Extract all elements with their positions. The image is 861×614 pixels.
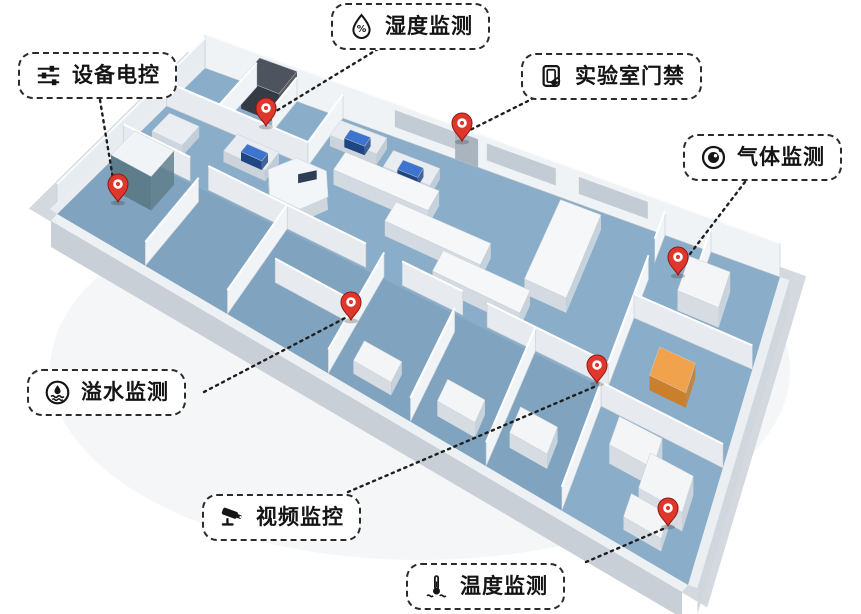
callout-label: 溢水监测: [81, 382, 169, 403]
gas-sensor-icon: [700, 144, 727, 171]
callout-lab-access: 实验室门禁: [521, 53, 702, 100]
callout-temperature: 温度监测: [406, 563, 565, 610]
door-access-icon: [538, 63, 565, 90]
lab-monitoring-infographic: 设备电控 % 湿度监测 实验室门禁 气体监测 溢水监测: [0, 0, 861, 614]
callout-equipment-control: 设备电控: [18, 52, 177, 99]
callout-humidity: % 湿度监测: [331, 3, 490, 50]
thermometer-icon: [423, 573, 450, 600]
callout-water-overflow: 溢水监测: [27, 369, 186, 416]
callout-label: 视频监控: [256, 507, 344, 528]
callout-label: 湿度监测: [385, 16, 473, 37]
water-overflow-icon: [44, 379, 71, 406]
callout-label: 设备电控: [72, 65, 160, 86]
humidity-drop-icon: %: [348, 13, 375, 40]
callout-video: 视频监控: [202, 494, 361, 541]
svg-text:%: %: [357, 24, 367, 35]
callout-label: 气体监测: [737, 147, 825, 168]
callout-gas: 气体监测: [683, 134, 842, 181]
callout-label: 温度监测: [460, 576, 548, 597]
cctv-camera-icon: [219, 504, 246, 531]
connector-lab-access: [464, 98, 534, 133]
sliders-icon: [35, 62, 62, 89]
callout-label: 实验室门禁: [575, 66, 685, 87]
